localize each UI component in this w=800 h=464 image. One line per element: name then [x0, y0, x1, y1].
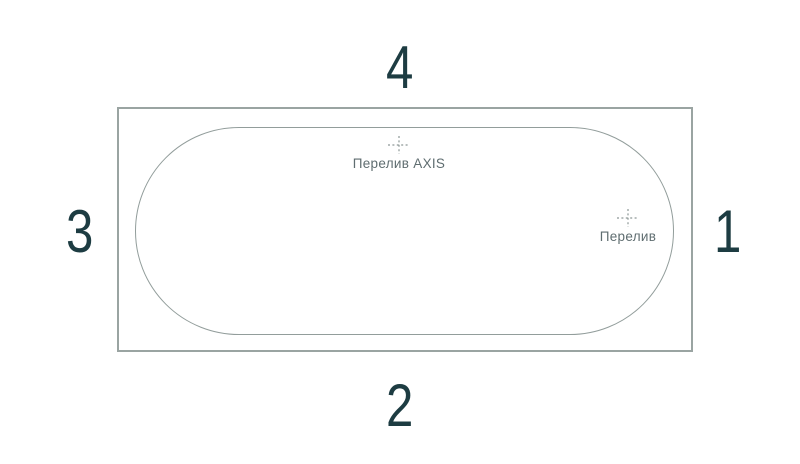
center-mark-icon [388, 136, 410, 154]
side-number-top: 4 [368, 38, 432, 98]
side-number-left-value: 3 [66, 202, 93, 262]
side-number-top-value: 4 [386, 38, 413, 98]
overflow-marker: Перелив [568, 209, 688, 245]
side-number-left: 3 [48, 202, 112, 262]
side-number-bottom-value: 2 [386, 376, 413, 436]
side-number-right: 1 [696, 202, 760, 262]
center-mark-icon [617, 209, 639, 227]
overflow-axis-marker: Перелив AXIS [329, 136, 469, 172]
overflow-label: Перелив [600, 229, 656, 245]
overflow-axis-label: Перелив AXIS [353, 156, 445, 172]
side-number-bottom: 2 [368, 376, 432, 436]
bathtub-scheme-diagram: 4 2 3 1 Перелив AXIS Перелив [0, 0, 800, 464]
side-number-right-value: 1 [714, 202, 741, 262]
